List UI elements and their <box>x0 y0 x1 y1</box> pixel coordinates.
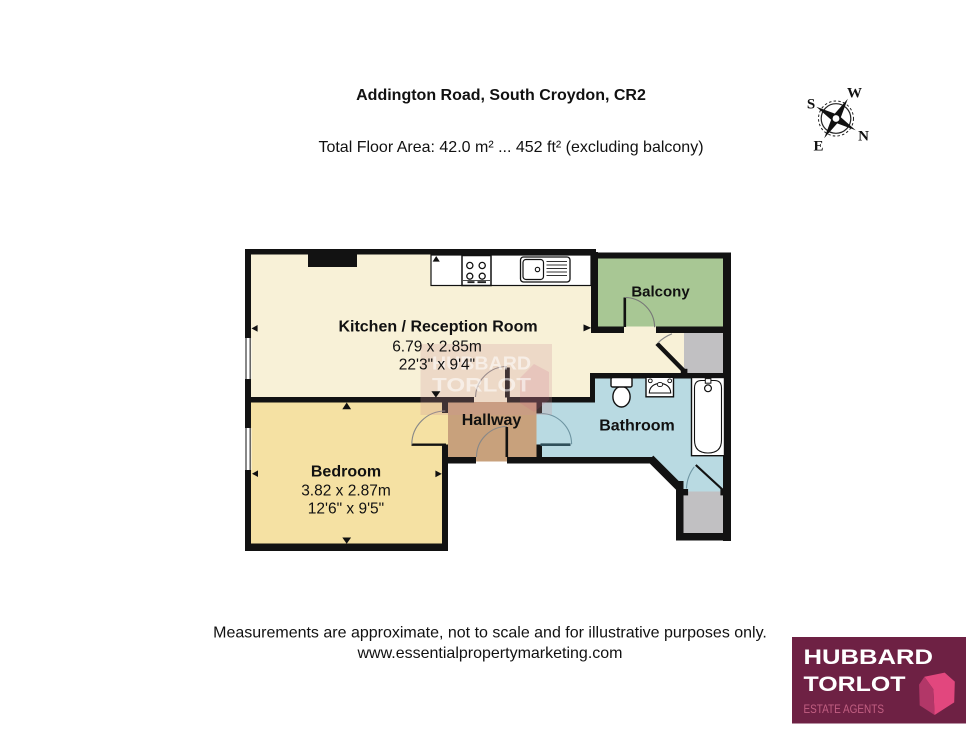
svg-text:Total Floor Area: 42.0 m² ...: Total Floor Area: 42.0 m² ... 452 ft² (e… <box>318 139 703 156</box>
svg-text:Bedroom: Bedroom <box>311 464 381 481</box>
svg-text:Measurements are approximate,: Measurements are approximate, not to sca… <box>213 625 767 642</box>
svg-text:TORLOT: TORLOT <box>804 672 906 696</box>
svg-text:Balcony: Balcony <box>631 284 690 301</box>
svg-text:S: S <box>807 97 815 113</box>
svg-text:12'6" x 9'5": 12'6" x 9'5" <box>308 501 384 518</box>
svg-text:W: W <box>847 86 862 102</box>
svg-text:TORLOT: TORLOT <box>432 375 531 397</box>
svg-text:Hallway: Hallway <box>462 412 522 429</box>
svg-text:N: N <box>858 129 869 145</box>
svg-text:HUBBARD: HUBBARD <box>804 645 934 669</box>
svg-text:E: E <box>813 139 823 155</box>
svg-text:Bathroom: Bathroom <box>599 418 675 435</box>
svg-text:3.82 x 2.87m: 3.82 x 2.87m <box>301 483 391 500</box>
svg-text:Kitchen / Reception Room: Kitchen / Reception Room <box>338 319 537 336</box>
svg-text:www.essentialpropertymarketing: www.essentialpropertymarketing.com <box>357 645 623 662</box>
svg-text:ESTATE AGENTS: ESTATE AGENTS <box>804 704 885 716</box>
svg-text:6.79 x 2.85m: 6.79 x 2.85m <box>392 339 482 356</box>
svg-text:Addington Road, South Croydon,: Addington Road, South Croydon, CR2 <box>356 87 646 104</box>
svg-text:22'3" x 9'4": 22'3" x 9'4" <box>399 357 475 374</box>
